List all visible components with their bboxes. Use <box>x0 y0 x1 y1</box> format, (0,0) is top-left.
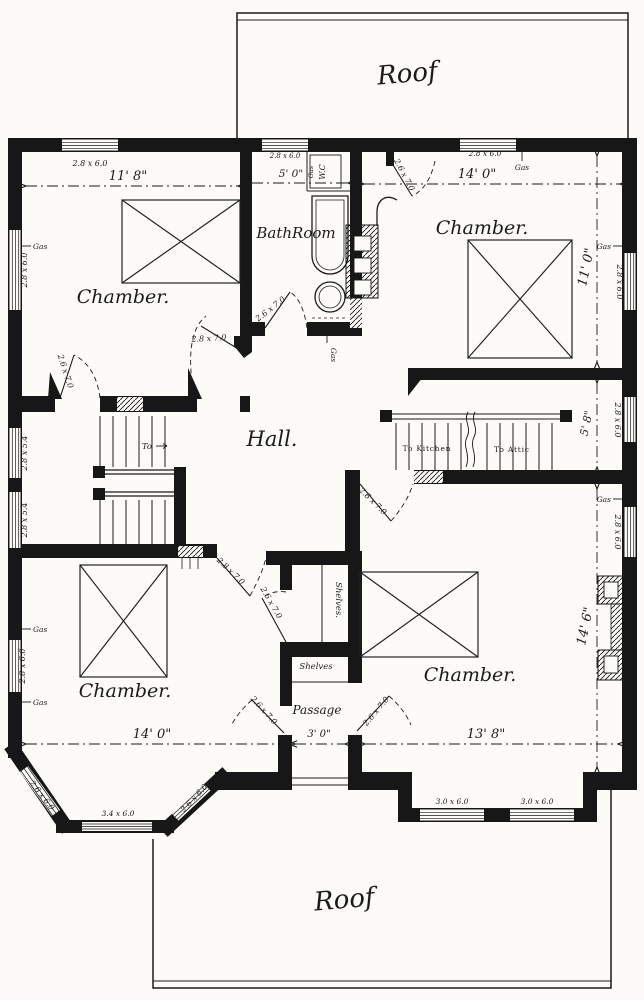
window-size-label: 3.4 x 6.0 <box>102 809 135 818</box>
newel-post <box>93 488 105 500</box>
window-left-1 <box>10 230 21 310</box>
window-bottom-2 <box>510 810 574 821</box>
window-size-label: 2.8 x 6.0 <box>613 513 622 549</box>
newel-post <box>380 410 392 422</box>
window-left-2 <box>10 428 21 478</box>
gas-label: Gas <box>515 163 529 172</box>
dimension-label: 13' 8" <box>467 727 506 742</box>
dimension-label: 14' 0" <box>133 727 172 742</box>
window-size-label: 3.0 x 6.0 <box>436 797 469 806</box>
door-size-label: 2.8 x 7.0 <box>190 333 226 344</box>
dimension-label: 14' 0" <box>458 167 497 182</box>
window-nw-top <box>62 140 118 151</box>
room-label-bathroom: BathRoom <box>255 224 335 242</box>
window-size-label: 2.8 x 5.4 <box>20 435 29 471</box>
window-size-label: 2.8 x 6.0 <box>615 263 624 299</box>
stair-label-to-attic: To Attic <box>494 445 530 454</box>
room-label-hall: Hall. <box>246 427 298 451</box>
room-label-chamber-ne: Chamber. <box>436 217 529 239</box>
stair-label-to: To <box>142 442 152 452</box>
window-size-label: 2.8 x 6.0 <box>613 401 622 437</box>
dimension-label: 5' 0" <box>279 168 303 180</box>
dimension-label: 3' 0" <box>307 729 330 740</box>
dimension-label: 11' 8" <box>109 169 148 184</box>
window-bath-top <box>262 140 308 151</box>
closet-label-shelves-tall: Shelves. <box>333 582 343 618</box>
window-size-label: 2.8 x 6.0 <box>20 252 29 288</box>
closet-label-shelves-low: Shelves <box>299 662 333 672</box>
roof-bottom-label: Roof <box>312 882 380 918</box>
room-label-chamber-sw: Chamber. <box>79 680 172 702</box>
window-bottom-1 <box>420 810 484 821</box>
gas-label: Gas <box>329 348 338 362</box>
room-label-chamber-se: Chamber. <box>424 664 517 686</box>
newel-post <box>560 410 572 422</box>
window-size-label: 2.8 x 6.0 <box>71 159 107 168</box>
stair-label-to-kitchen: To Kitchen <box>403 444 452 453</box>
room-label-passage: Passage <box>292 703 342 717</box>
room-label-chamber-nw: Chamber. <box>77 286 170 308</box>
window-right-2 <box>625 397 636 442</box>
gas-label: Gas <box>597 242 611 251</box>
gas-label: Gas <box>33 698 47 707</box>
gas-label: Gas <box>597 495 611 504</box>
window-right-3 <box>625 507 636 557</box>
window-size-label: 2.8 x 6.0 <box>269 152 301 160</box>
roof-top-label: Roof <box>375 56 443 92</box>
window-size-label: 2.8 x 6.0 <box>18 648 27 684</box>
bay-window-front <box>82 822 152 831</box>
window-size-label: 3.0 x 6.0 <box>521 797 554 806</box>
newel-post <box>93 466 105 478</box>
room-label-wc: W.C <box>318 164 327 180</box>
gas-label: Gas <box>33 625 47 634</box>
window-size-label: 2.8 x 6.0 <box>468 149 502 158</box>
floor-plan-drawing: Roof Roof <box>0 0 644 1000</box>
floor-plan-sheet: Roof Roof <box>0 0 644 1000</box>
window-left-3 <box>10 492 21 548</box>
window-right-1 <box>625 253 636 310</box>
gas-label: Gas <box>307 165 315 178</box>
gas-label: Gas <box>33 242 47 251</box>
window-size-label: 2.8 x 5.4 <box>20 502 29 538</box>
